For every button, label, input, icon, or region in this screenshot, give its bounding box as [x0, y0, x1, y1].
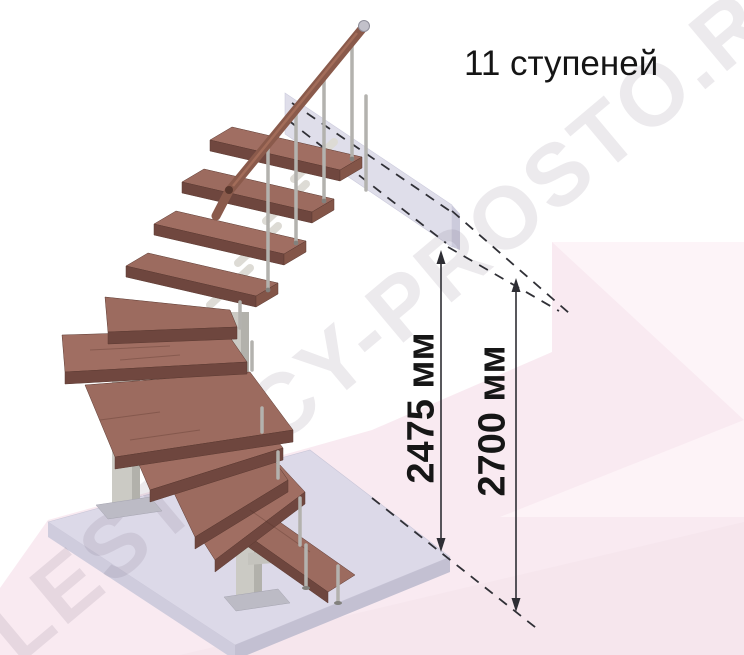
handrail-metal-cap [359, 21, 370, 32]
handrail [216, 21, 370, 217]
dimension-label-2475: 2475 мм [401, 332, 444, 483]
arrow-up-icon [512, 278, 521, 292]
diagram-title: 11 ступеней [464, 44, 658, 84]
handrail-joint [225, 186, 233, 194]
staircase-dimension-diagram: LESTNICY-PROSTO.RU [0, 0, 744, 655]
post-base-plate [224, 589, 290, 611]
arrow-down-icon [437, 538, 446, 552]
dimension-label-2700: 2700 мм [472, 345, 515, 496]
arrow-down-icon [512, 598, 521, 612]
straight-flight-steps [126, 127, 362, 307]
watermark: LESTNICY-PROSTO.RU [0, 0, 744, 655]
step-bracket [248, 549, 300, 565]
